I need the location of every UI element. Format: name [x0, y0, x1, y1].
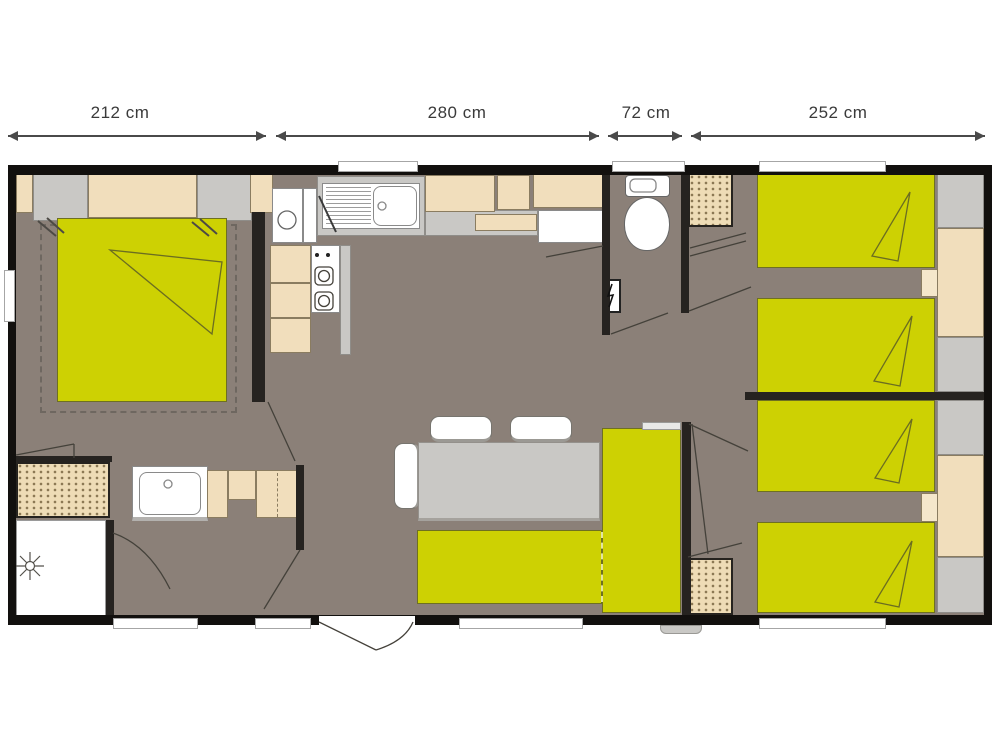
wall-shower	[106, 520, 114, 617]
dimension-label-252: 252 cm	[809, 103, 868, 123]
sink-drainer	[326, 187, 371, 225]
bedroom2-closet	[937, 228, 984, 337]
single-bed-4	[757, 522, 935, 613]
entrance-door-opening	[319, 616, 415, 625]
upper-cabinet-c	[533, 173, 603, 208]
dimension-label-280: 280 cm	[428, 103, 487, 123]
wall-left	[8, 165, 16, 625]
bedroom2-shelf-bottom	[937, 337, 984, 392]
dimension-line-252	[691, 135, 985, 137]
kitchen-tall-cabinet	[250, 174, 273, 213]
floor-plan: 212 cm 280 cm 72 cm 252 cm	[0, 0, 1000, 750]
bedroom3-shelf-top	[937, 400, 984, 455]
dining-chair-1	[430, 416, 492, 442]
dining-chair-3	[394, 443, 420, 509]
wall-wc-left	[602, 165, 610, 335]
kitchen-appliance	[538, 210, 603, 243]
bathroom-cabinet	[256, 470, 298, 518]
toilet-bowl	[624, 197, 670, 251]
headboard-cabinet-right	[197, 174, 252, 221]
cabinet-door-divider	[277, 473, 278, 517]
single-bed-1	[757, 173, 935, 268]
window-bedroom3	[759, 618, 886, 629]
sink-basin	[373, 186, 417, 226]
dimension-label-72: 72 cm	[622, 103, 671, 123]
bedroom3-closet	[937, 455, 984, 557]
dimension-line-280	[276, 135, 599, 137]
bathroom-bench	[207, 470, 228, 518]
wall-hall	[682, 422, 691, 617]
kitchen-cabinet-2	[270, 283, 311, 318]
window-bedroom2	[759, 161, 886, 172]
window-bathroom	[113, 618, 198, 629]
sofa-bench	[417, 530, 602, 604]
single-bed-2	[757, 298, 935, 393]
sofa-seam	[601, 532, 603, 602]
bathroom-wardrobe	[16, 462, 110, 518]
toilet-cistern	[625, 175, 670, 197]
window-master-bedroom	[4, 270, 15, 322]
dimension-line-212	[8, 135, 266, 137]
wall-bedroom-living	[252, 212, 265, 402]
upper-cabinet-b	[497, 175, 530, 210]
sofa-corner	[602, 428, 681, 613]
wall-between-bedrooms	[745, 392, 984, 400]
window-kitchen	[338, 161, 418, 172]
bathroom-bench-corner	[228, 470, 256, 500]
washbasin-bowl	[139, 472, 201, 515]
wall-right	[984, 165, 992, 625]
bedroom3-wardrobe	[688, 558, 733, 615]
window-living-left	[255, 618, 311, 629]
bedroom2-nightstand	[921, 269, 938, 297]
kitchen-cabinet-3	[270, 318, 311, 353]
dining-chair-2	[510, 416, 572, 442]
upper-cabinet-a	[425, 175, 495, 212]
dimension-line-72	[608, 135, 682, 137]
window-living-right	[459, 618, 583, 629]
headboard-shelf-center	[88, 174, 197, 218]
kitchen-cabinet-1	[270, 245, 311, 283]
counter-return	[340, 245, 351, 355]
fridge	[272, 188, 303, 243]
bedroom3-shelf-bottom	[937, 557, 984, 613]
single-bed-3	[757, 400, 935, 492]
shower	[16, 520, 106, 617]
bedroom2-wardrobe	[688, 173, 733, 227]
wall-bathroom-right	[296, 465, 304, 550]
counter-shelf	[475, 214, 537, 231]
sofa-armrest	[642, 422, 681, 430]
dimension-label-212: 212 cm	[91, 103, 150, 123]
dining-table	[418, 442, 600, 521]
wall-wc-right	[681, 165, 689, 313]
bedroom2-shelf-top	[937, 174, 984, 228]
headboard-shelf-left	[16, 174, 33, 213]
bedroom3-nightstand	[921, 493, 938, 522]
window-wc	[612, 161, 685, 172]
entry-step	[660, 625, 702, 634]
wall-bathroom-top	[8, 456, 112, 462]
headboard-cabinet-left	[33, 174, 88, 221]
double-bed	[57, 218, 227, 402]
fridge-door	[303, 188, 317, 243]
stove	[311, 245, 340, 313]
